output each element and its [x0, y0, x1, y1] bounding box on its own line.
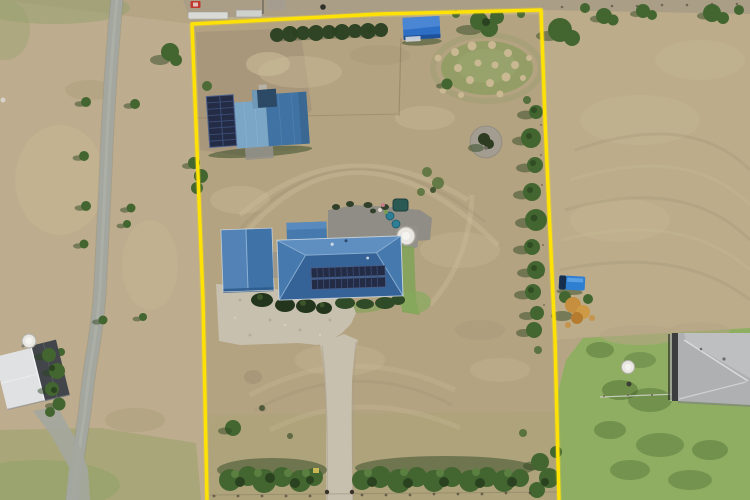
- spa: [393, 199, 408, 211]
- beehive-box: [313, 468, 319, 473]
- aerial-photo-canvas: Aerial drone photograph of a rural resid…: [0, 0, 750, 500]
- garage: [221, 228, 274, 293]
- white-trailer-2: [236, 10, 262, 17]
- water-tank-left: [22, 334, 37, 348]
- gate-post: [325, 490, 329, 494]
- blue-trailer: [556, 275, 585, 295]
- neighbour-house-right: [668, 333, 750, 406]
- aerial-photo: Aerial drone photograph of a rural resid…: [0, 0, 750, 500]
- gate-post: [350, 490, 354, 494]
- tarp-shed: [400, 16, 441, 47]
- shed-solar-array: [206, 95, 236, 148]
- white-trailer: [188, 12, 228, 19]
